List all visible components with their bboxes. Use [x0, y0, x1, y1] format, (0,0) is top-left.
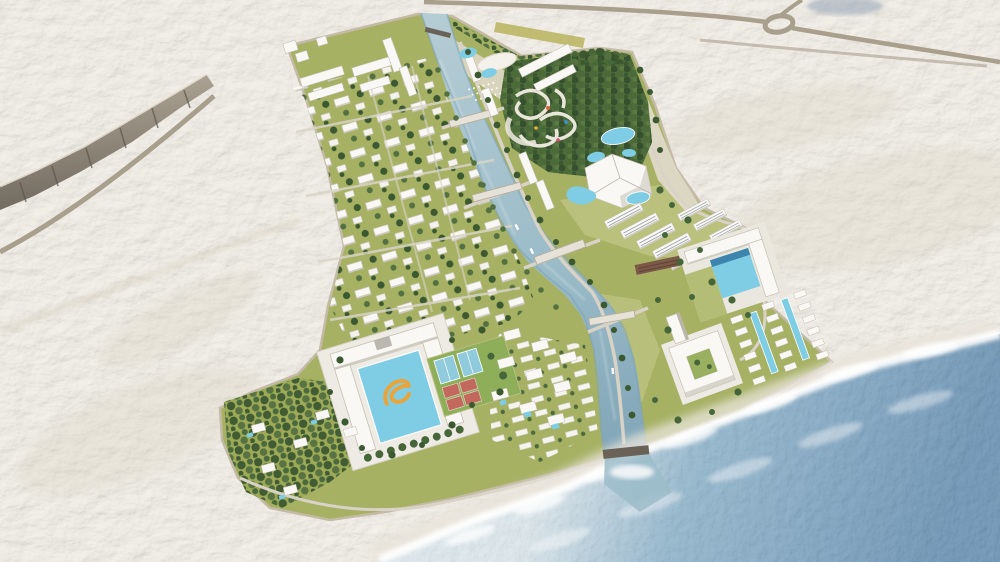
lagoon-pool-tiny — [622, 149, 636, 157]
masterplan-canvas — [0, 0, 1000, 562]
outfall-foam — [610, 465, 654, 479]
masterplan-rendering — [0, 0, 1000, 562]
